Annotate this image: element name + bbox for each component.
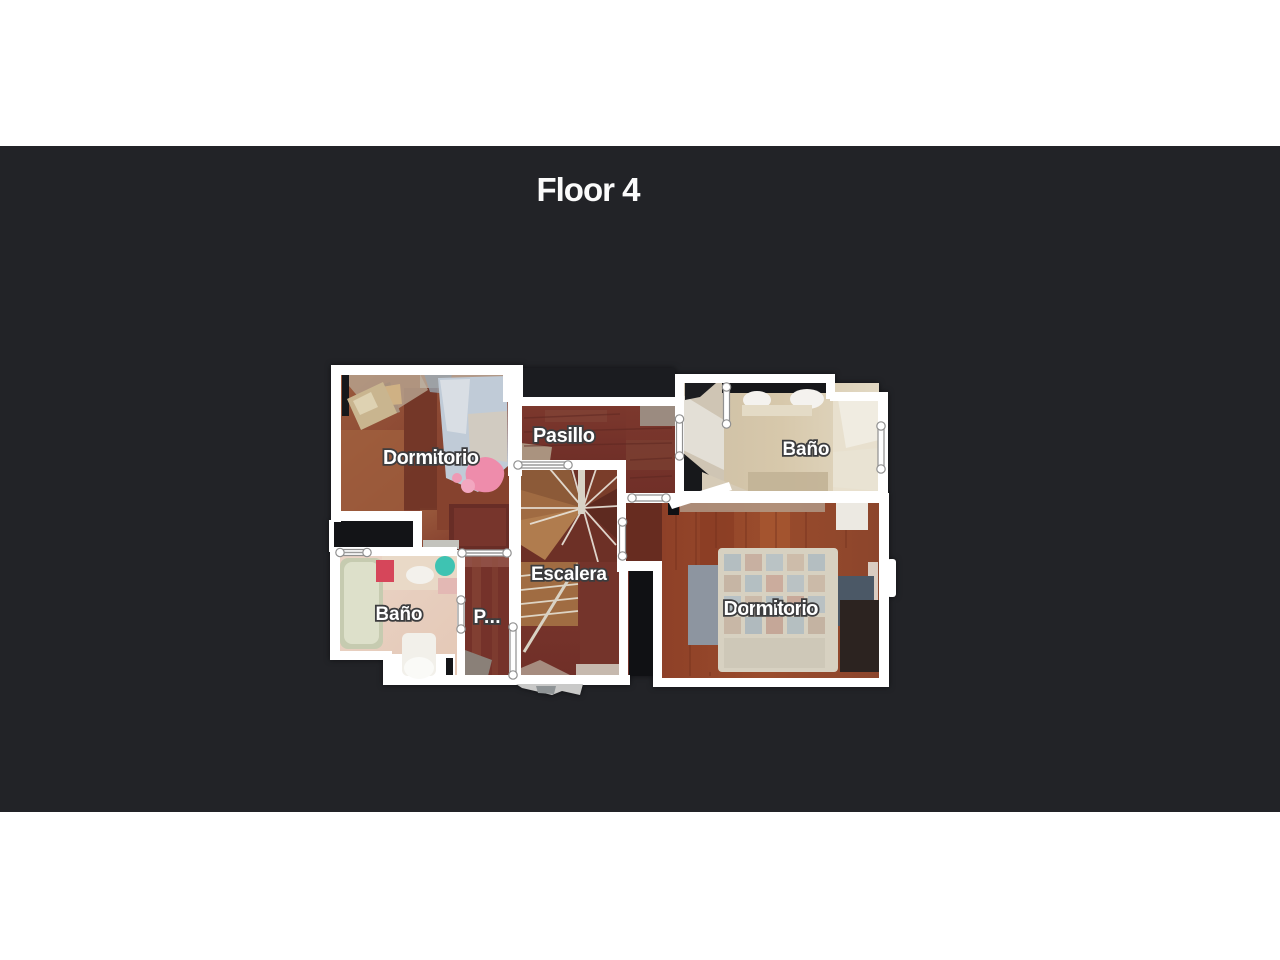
svg-text:Pasillo: Pasillo	[533, 425, 595, 447]
svg-text:Escalera: Escalera	[531, 564, 607, 585]
svg-text:Dormitorio: Dormitorio	[724, 597, 819, 620]
svg-text:Baño: Baño	[376, 604, 423, 625]
svg-text:Dormitorio: Dormitorio	[383, 447, 479, 469]
svg-text:Baño: Baño	[783, 439, 830, 460]
svg-text:P...: P...	[474, 607, 501, 628]
